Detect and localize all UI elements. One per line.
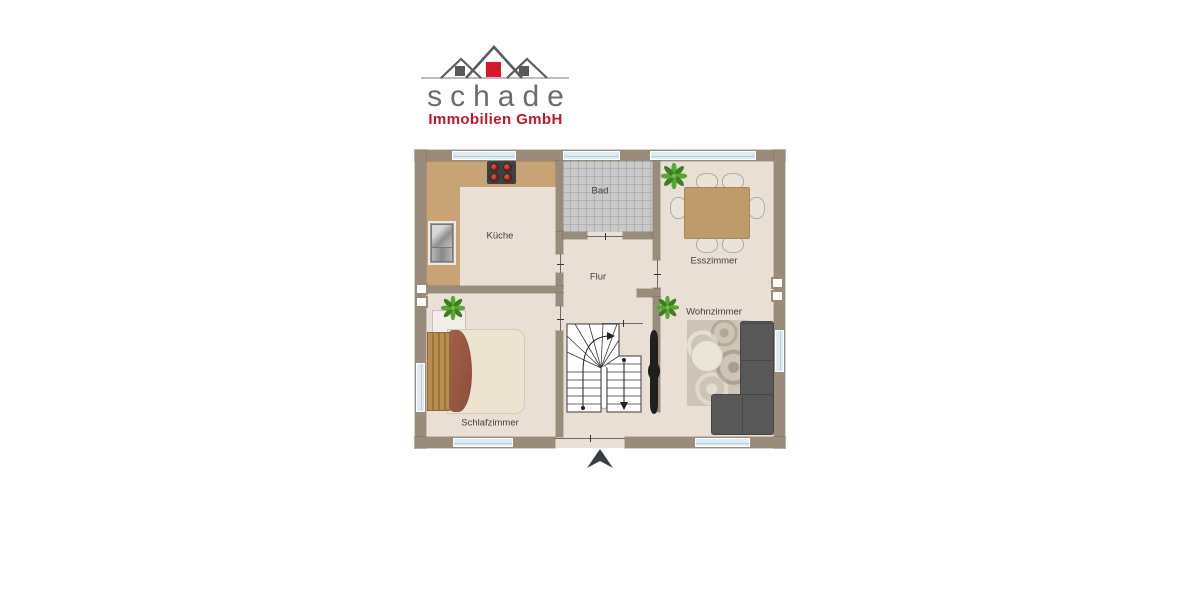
chimney-left-a <box>415 283 428 295</box>
wall-kueche-flur-a <box>556 232 563 254</box>
headboard-icon <box>427 332 450 411</box>
wall-flur-esszimmer-a <box>653 161 660 260</box>
room-label-wohnzimmer: Wohnzimmer <box>686 307 742 318</box>
stove-icon <box>487 161 516 184</box>
room-label-esszimmer: Esszimmer <box>691 256 738 267</box>
wall-bad-flur-b <box>623 232 653 239</box>
plant-icon <box>661 163 687 189</box>
coffee-table-icon <box>691 340 723 372</box>
window-esszimmer-top <box>650 151 756 160</box>
door-bad <box>587 232 623 239</box>
window-kueche-top <box>452 151 516 160</box>
room-label-kueche: Küche <box>487 231 514 242</box>
plant-icon <box>441 296 465 320</box>
staircase-icon <box>565 322 643 416</box>
window-schlafzimmer-left <box>416 363 425 412</box>
room-bad-floor <box>563 161 653 232</box>
entrance-arrow-icon <box>587 449 613 468</box>
dining-table-icon <box>684 187 750 239</box>
room-label-bad: Bad <box>592 186 609 197</box>
window-schlafzimmer-bottom <box>453 438 513 447</box>
door-kueche <box>556 254 563 273</box>
wall-schlafzimmer-stairs <box>556 331 563 437</box>
door-esszimmer <box>653 260 660 288</box>
window-wohnzimmer-right <box>775 330 784 372</box>
wall-kueche-bad <box>556 161 563 232</box>
sink-icon <box>428 221 456 265</box>
window-wohnzimmer-bottom <box>695 438 750 447</box>
wall-schlafzimmer-flur-a <box>556 293 563 306</box>
sofa-icon <box>711 394 774 435</box>
chimney-left-b <box>415 296 428 308</box>
brand-subtitle: Immobilien GmbH <box>408 111 583 128</box>
chimney-right-a <box>771 277 784 289</box>
window-bad-top <box>563 151 620 160</box>
logo-roofs-icon <box>420 42 570 80</box>
dark-decor-icon <box>648 362 660 380</box>
plant-icon <box>656 296 679 319</box>
room-label-schlafzimmer: Schlafzimmer <box>461 418 519 429</box>
chair-icon <box>748 197 765 219</box>
chimney-right-b <box>771 290 784 302</box>
door-entrance <box>555 434 625 441</box>
page: schade Immobilien GmbH <box>0 0 1200 600</box>
wall-bad-flur-a <box>563 232 587 239</box>
floorplan: Küche Bad Esszimmer Flur Wohnzimmer Schl… <box>415 150 785 448</box>
wall-kueche-schlafzimmer <box>426 286 563 293</box>
brand-name: schade <box>408 80 583 114</box>
room-label-flur: Flur <box>590 272 606 283</box>
door-schlafzimmer <box>556 306 563 331</box>
